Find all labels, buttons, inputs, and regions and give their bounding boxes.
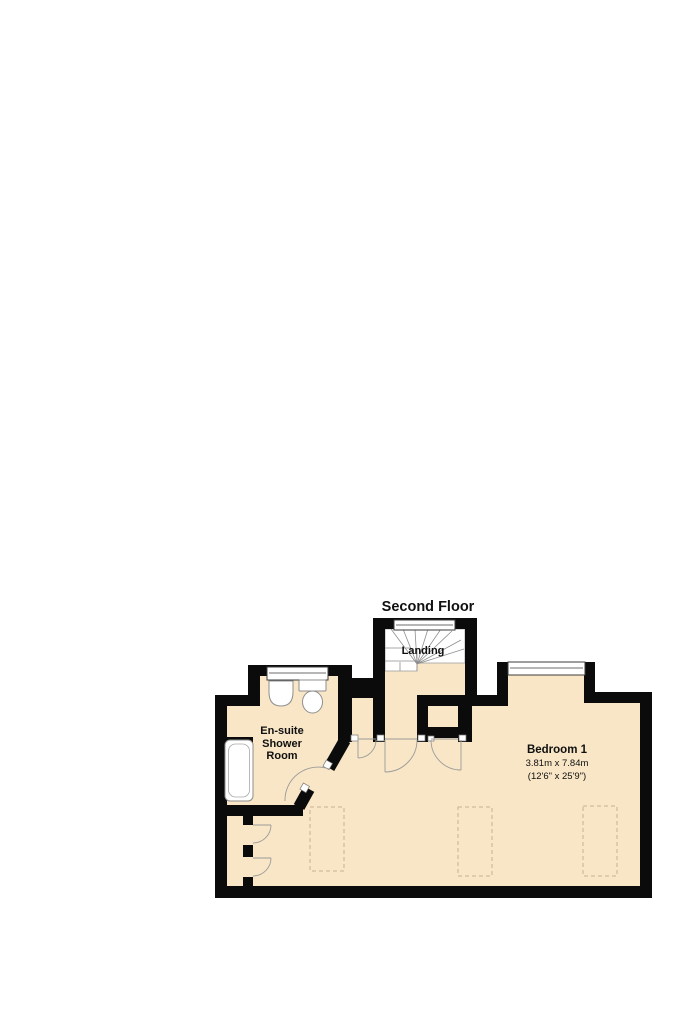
toilet-cistern	[299, 680, 326, 691]
room-label-landing: Landing	[383, 645, 463, 657]
wall-right	[640, 692, 652, 898]
jamb-cap	[377, 735, 384, 741]
wall-landing-right	[465, 618, 477, 706]
window-ensuite	[267, 667, 328, 680]
room-label-bedroom1: Bedroom 1	[497, 744, 617, 756]
wall-ensuite-right	[338, 665, 352, 742]
floorplan-second-floor: Second Floor Landing En-suiteShowerRoom …	[0, 0, 673, 1024]
bedroom1-size-metric: 3.81m x 7.84m	[497, 758, 617, 769]
ensuite-label-line2: Shower	[262, 738, 302, 750]
ensuite-label-line1: En-suite	[260, 725, 303, 737]
wall-right-step	[584, 692, 652, 703]
bedroom1-size-imperial: (12'6" x 25'9")	[497, 771, 617, 782]
ensuite-label-line3: Room	[266, 750, 297, 762]
wall-connector	[350, 678, 375, 698]
wall-ensuite-bottom	[215, 805, 303, 816]
sink-basin	[269, 681, 293, 706]
toilet-bowl	[303, 691, 323, 713]
page-title: Second Floor	[348, 599, 508, 615]
floorplan-drawing	[0, 0, 673, 1024]
jamb-cap	[351, 735, 358, 741]
wall-cupboard-jamb-3	[243, 877, 253, 888]
window-bedroom	[508, 662, 585, 675]
wall-cupboard-jamb-2	[243, 845, 253, 857]
jamb-cap	[459, 735, 466, 741]
room-label-ensuite: En-suiteShowerRoom	[237, 725, 327, 763]
wall-mid-horizontal	[417, 695, 508, 706]
wall-bottom	[215, 886, 652, 898]
wall-cupboard-jamb-1	[243, 815, 253, 825]
jamb-cap	[418, 735, 425, 741]
wall-landing-left	[373, 618, 385, 742]
